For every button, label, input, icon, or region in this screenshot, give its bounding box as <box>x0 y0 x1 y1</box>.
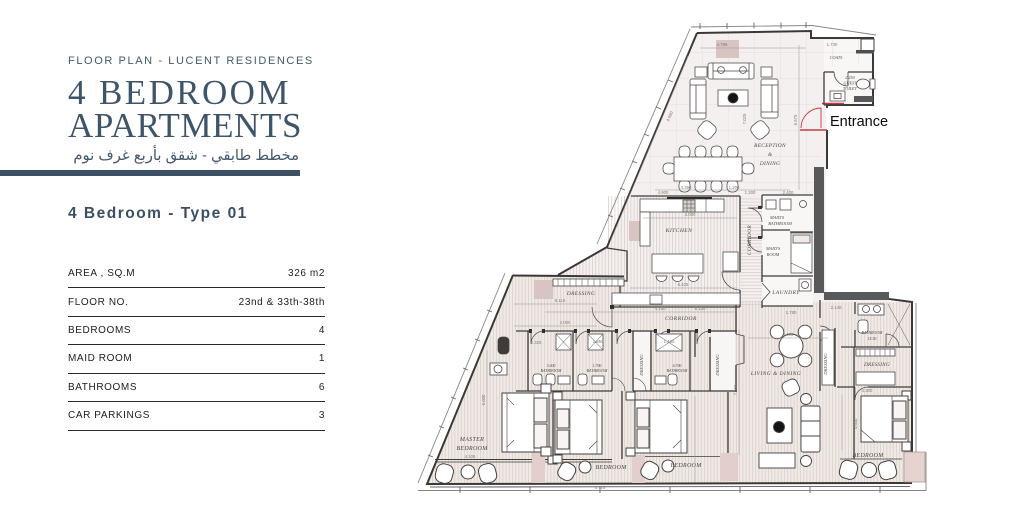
svg-text:2.250: 2.250 <box>845 75 855 80</box>
svg-text:5.425: 5.425 <box>678 282 689 287</box>
svg-text:4.600: 4.600 <box>853 418 858 429</box>
svg-text:6.115: 6.115 <box>555 298 566 303</box>
svg-text:1.730: 1.730 <box>827 42 838 47</box>
svg-text:Entrance: Entrance <box>830 114 888 130</box>
svg-text:4.390: 4.390 <box>681 185 692 190</box>
svg-text:4.000: 4.000 <box>560 320 571 325</box>
svg-text:3.000: 3.000 <box>547 364 556 368</box>
svg-text:6.000: 6.000 <box>481 394 486 405</box>
svg-text:DRESSING: DRESSING <box>639 354 644 377</box>
svg-text:LIVING & DINING: LIVING & DINING <box>750 371 801 377</box>
svg-text:6.700: 6.700 <box>673 364 682 368</box>
svg-text:TOILET: TOILET <box>843 86 858 91</box>
svg-text:DRESSING: DRESSING <box>566 291 595 297</box>
svg-text:7.150: 7.150 <box>733 384 738 395</box>
svg-text:LAUNDRY: LAUNDRY <box>771 290 800 296</box>
svg-text:4.110: 4.110 <box>595 485 606 490</box>
svg-text:RECEPTION: RECEPTION <box>753 143 786 149</box>
svg-text:BEDROOM: BEDROOM <box>595 465 627 471</box>
svg-text:BEDROOM: BEDROOM <box>456 446 488 452</box>
svg-text:ROOM: ROOM <box>766 252 780 257</box>
svg-text:CORRIDOR: CORRIDOR <box>665 316 697 322</box>
svg-text:6.130: 6.130 <box>695 306 706 311</box>
svg-text:1.200: 1.200 <box>729 185 740 190</box>
svg-text:BATHROOM: BATHROOM <box>768 221 792 226</box>
svg-text:COATS: COATS <box>830 55 844 60</box>
svg-text:BATHROOM: BATHROOM <box>587 369 609 373</box>
svg-text:KITCHEN: KITCHEN <box>665 228 692 234</box>
svg-text:4.000: 4.000 <box>685 212 696 217</box>
svg-text:BEDROOM: BEDROOM <box>670 463 702 469</box>
svg-text:1.780: 1.780 <box>786 310 797 315</box>
svg-text:1.700: 1.700 <box>593 364 602 368</box>
svg-text:DRESSING: DRESSING <box>863 363 890 368</box>
svg-text:4.400: 4.400 <box>783 332 794 337</box>
svg-text:15.50: 15.50 <box>868 337 877 341</box>
svg-text:BATHROOM: BATHROOM <box>541 369 563 373</box>
svg-text:4.150: 4.150 <box>655 306 666 311</box>
svg-text:6.575: 6.575 <box>793 114 798 125</box>
svg-text:2.140: 2.140 <box>831 305 842 310</box>
svg-text:1.200: 1.200 <box>745 190 756 195</box>
svg-text:2.400: 2.400 <box>783 190 794 195</box>
svg-text:4.900: 4.900 <box>658 190 669 195</box>
svg-text:DRESSING: DRESSING <box>715 354 720 377</box>
svg-text:1.100: 1.100 <box>664 339 675 344</box>
svg-text:MASTER: MASTER <box>459 437 484 443</box>
svg-text:4.105: 4.105 <box>465 454 476 459</box>
svg-text:MAID'S: MAID'S <box>765 246 781 251</box>
svg-text:CORRIDOR: CORRIDOR <box>747 225 753 255</box>
svg-text:7.025: 7.025 <box>742 113 747 124</box>
svg-text:BEDROOM: BEDROOM <box>852 453 884 459</box>
svg-text:4.785: 4.785 <box>717 42 728 47</box>
svg-text:DRESSING: DRESSING <box>823 353 828 376</box>
svg-text:BATHROOM: BATHROOM <box>667 369 689 373</box>
svg-text:1.850: 1.850 <box>593 339 604 344</box>
svg-text:2.325: 2.325 <box>531 340 542 345</box>
svg-text:GUEST: GUEST <box>843 81 857 86</box>
svg-text:MAID'S: MAID'S <box>769 215 785 220</box>
svg-text:DINING: DINING <box>759 161 780 167</box>
svg-text:BATHROOM: BATHROOM <box>862 331 884 335</box>
svg-text:4.300: 4.300 <box>862 388 873 393</box>
